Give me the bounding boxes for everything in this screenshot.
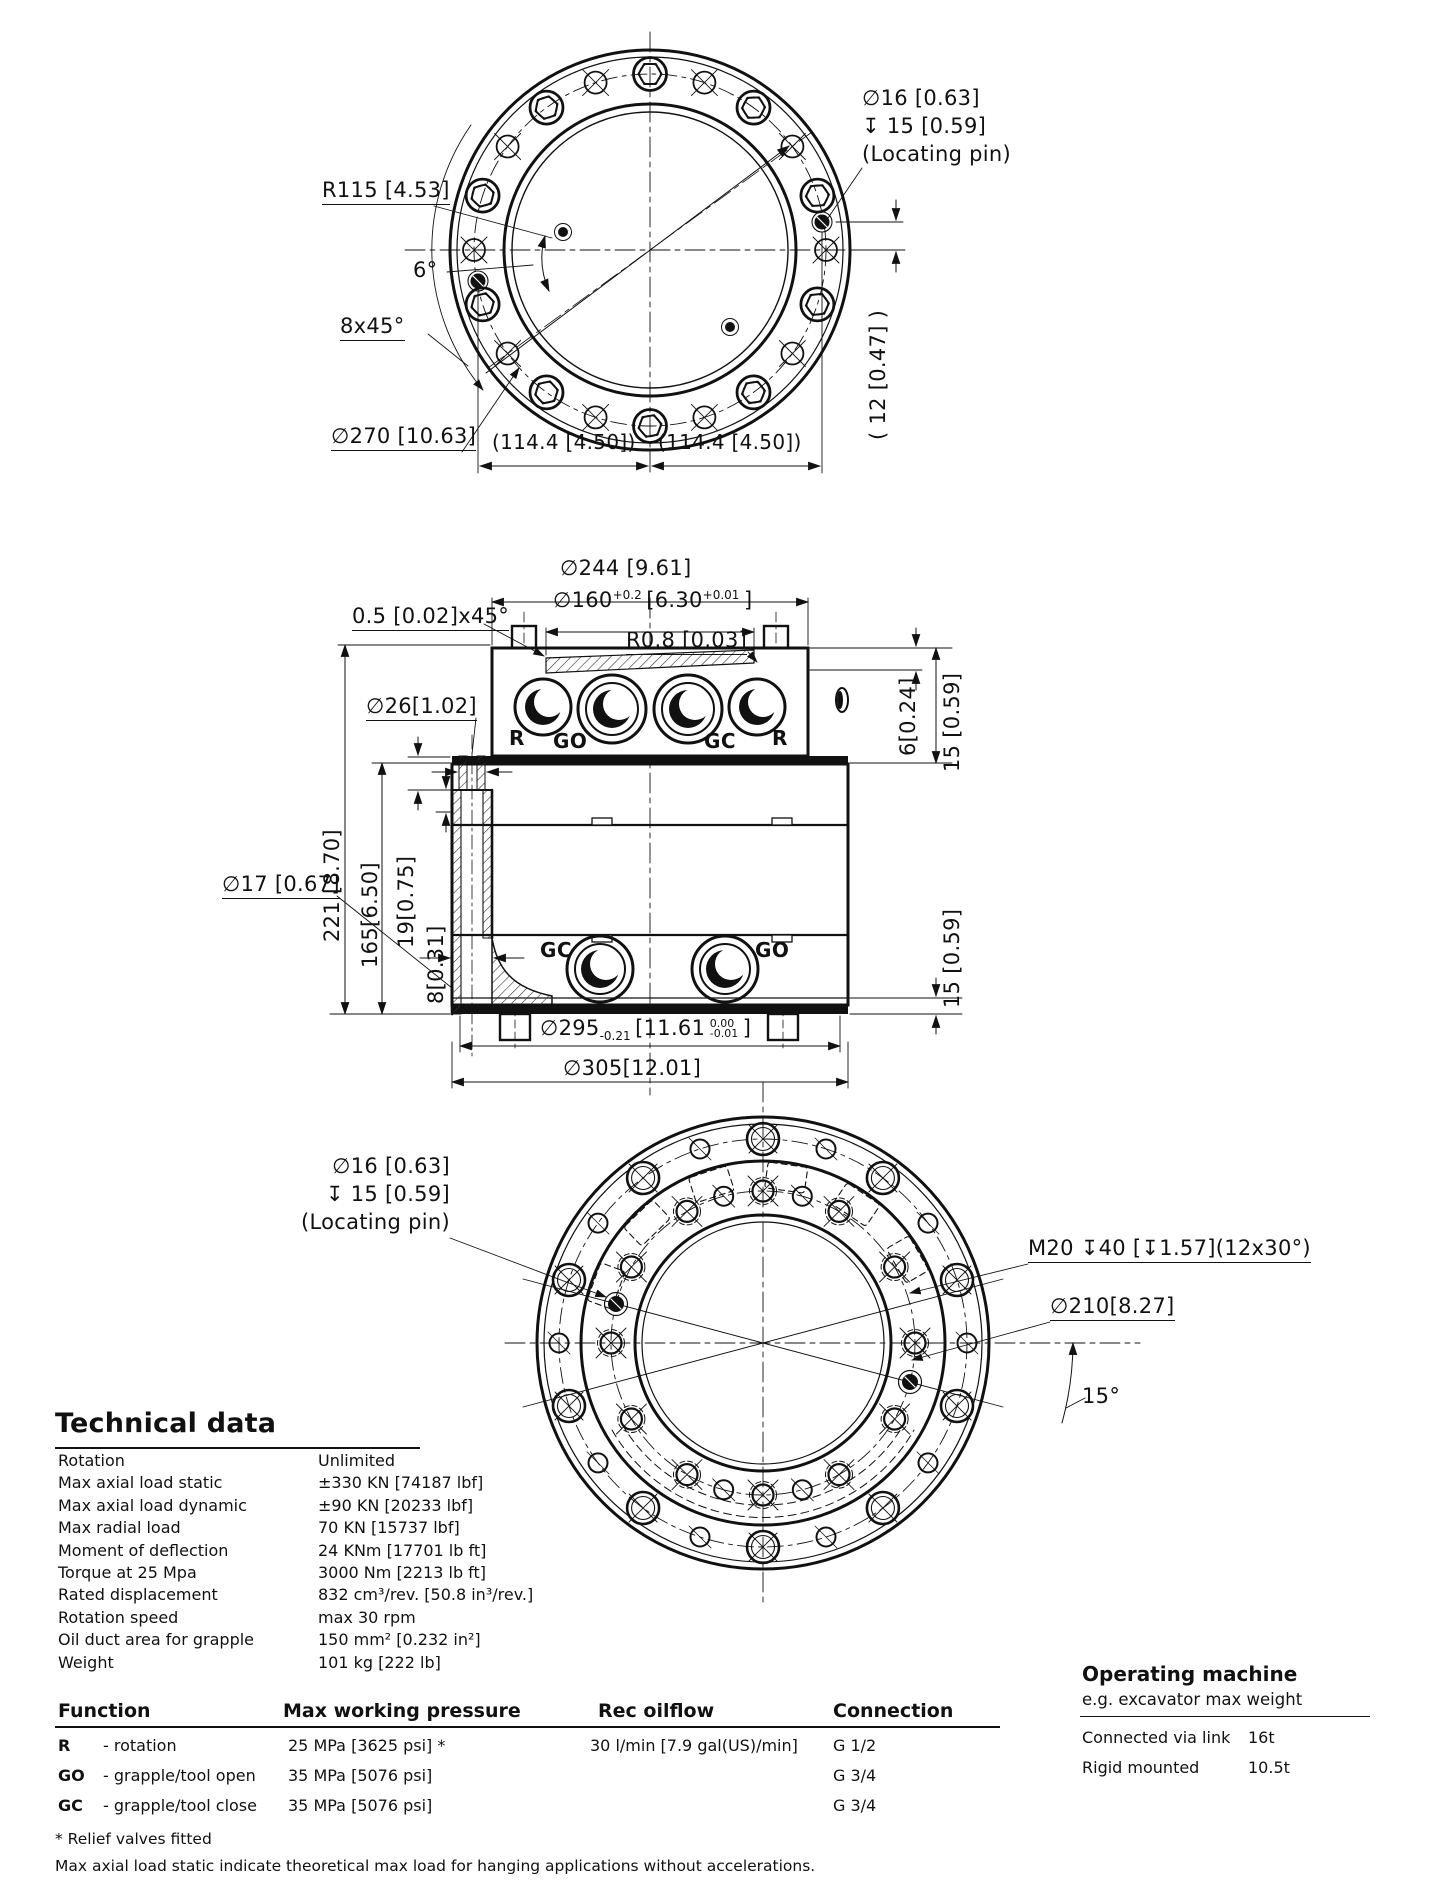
func-pressure: 35 MPa [5076 psi] [288, 1766, 432, 1785]
func-desc: - rotation [103, 1736, 177, 1755]
td-value: 70 KN [15737 lbf] [318, 1517, 533, 1539]
td-label: Oil duct area for grapple [58, 1629, 318, 1651]
port-label-r2: R [772, 726, 788, 750]
func-pressure: 25 MPa [3625 psi] * [288, 1736, 445, 1755]
dia-26-label: ∅26[1.02] [366, 694, 477, 721]
td-label: Moment of deflection [58, 1540, 318, 1562]
func-desc: - grapple/tool close [103, 1796, 257, 1815]
td-label: Rotation speed [58, 1607, 318, 1629]
func-code: GO [58, 1766, 85, 1785]
function-table-rule [55, 1726, 1000, 1728]
dia-210-label: ∅210[8.27] [1050, 1294, 1175, 1321]
dia-160-label: ∅160+0.2 [6.30+0.01 ] [553, 588, 752, 612]
radius-dim-label: R115 [4.53] [322, 178, 450, 205]
side-view-bottom-ports [567, 936, 758, 1002]
dia-305-label: ∅305[12.01] [563, 1056, 701, 1080]
thread-spec-label: M20 ↧40 [↧1.57](12x30°) [1028, 1236, 1311, 1263]
om-label: Rigid mounted [1082, 1758, 1199, 1777]
td-label: Torque at 25 Mpa [58, 1562, 318, 1584]
technical-data-table: RotationUnlimited Max axial load static±… [58, 1450, 533, 1674]
operating-machine-heading: Operating machine [1082, 1662, 1297, 1686]
dia-244-label: ∅244 [9.61] [560, 556, 692, 580]
func-header-function: Function [58, 1700, 151, 1722]
td-value: Unlimited [318, 1450, 533, 1472]
pin-note-label: (Locating pin) [301, 1208, 450, 1236]
bolt-circle-dia-label: ∅270 [10.63] [331, 424, 476, 451]
port-label-go-bottom: GO [755, 938, 789, 962]
port-label-r1: R [509, 726, 525, 750]
angle-15-label: 15° [1082, 1384, 1120, 1408]
om-value: 16t [1248, 1728, 1275, 1747]
angle-6-label: 6° [413, 258, 437, 282]
operating-machine-subheading: e.g. excavator max weight [1082, 1690, 1302, 1709]
bottom-view-drawing [450, 1082, 1140, 1605]
height-8-label: 8[0.31] [424, 925, 448, 1004]
pin-height-label: ( 12 [0.47] ) [866, 310, 890, 440]
dia-17-label: ∅17 [0.67] [222, 872, 340, 899]
pin-dia-label: ∅16 [0.63] [290, 1152, 450, 1180]
port-label-gc-bottom: GC [540, 938, 572, 962]
pin-dia-label: ∅16 [0.63] [862, 84, 1011, 112]
func-code: R [58, 1736, 70, 1755]
td-value: 832 cm³/rev. [50.8 in³/rev.] [318, 1584, 533, 1606]
pin-offset-right-label: (114.4 [4.50]) [658, 430, 802, 454]
om-label: Connected via link [1082, 1728, 1230, 1747]
top-view-locating-pin-left [468, 271, 488, 291]
func-oilflow: 30 l/min [7.9 gal(US)/min] [590, 1736, 798, 1755]
bottom-pin-note: ∅16 [0.63] ↧ 15 [0.59] (Locating pin) [290, 1152, 450, 1236]
om-value: 10.5t [1248, 1758, 1290, 1777]
dia-295-label: ∅295-0.21 [11.61 0.00-0.01 ] [540, 1016, 751, 1040]
td-label: Max axial load dynamic [58, 1495, 318, 1517]
footnote-relief-valves: * Relief valves fitted [55, 1830, 212, 1848]
func-header-connection: Connection [833, 1700, 953, 1722]
top-view-locating-pin-right [812, 212, 832, 232]
height-19-label: 19[0.75] [394, 856, 418, 948]
operating-machine-rule [1080, 1716, 1370, 1717]
td-value: 24 KNm [17701 lb ft] [318, 1540, 533, 1562]
td-value: 101 kg [222 lb] [318, 1652, 533, 1674]
bottom-view-locating-pin-right [899, 1371, 922, 1394]
step-15-lower-label: 15 [0.59] [940, 909, 964, 1008]
func-connection: G 3/4 [833, 1766, 876, 1785]
port-label-go: GO [553, 729, 587, 753]
technical-data-heading: Technical data [55, 1408, 420, 1449]
drawing-sheet: ∅16 [0.63] ↧ 15 [0.59] (Locating pin) R1… [0, 0, 1431, 1887]
td-label: Rated displacement [58, 1584, 318, 1606]
height-165-label: 165[6.50] [358, 862, 382, 968]
td-value: ±90 KN [20233 lbf] [318, 1495, 533, 1517]
func-connection: G 1/2 [833, 1736, 876, 1755]
td-value: max 30 rpm [318, 1607, 533, 1629]
port-label-gc: GC [704, 729, 736, 753]
pin-depth-label: ↧ 15 [0.59] [862, 112, 1011, 140]
chamfer-8x45-label: 8x45° [340, 314, 405, 341]
td-label: Max axial load static [58, 1472, 318, 1494]
pin-depth-label: ↧ 15 [0.59] [290, 1180, 450, 1208]
td-label: Weight [58, 1652, 318, 1674]
td-value: 3000 Nm [2213 lb ft] [318, 1562, 533, 1584]
step-6-label: 6[0.24] [896, 677, 920, 756]
func-code: GC [58, 1796, 83, 1815]
td-label: Max radial load [58, 1517, 318, 1539]
func-desc: - grapple/tool open [103, 1766, 256, 1785]
top-view-drawing [405, 32, 905, 475]
pin-offset-left-label: (114.4 [4.50]) [492, 430, 636, 454]
func-connection: G 3/4 [833, 1796, 876, 1815]
td-label: Rotation [58, 1450, 318, 1472]
footnote-max-load: Max axial load static indicate theoretic… [55, 1857, 815, 1875]
top-pin-note: ∅16 [0.63] ↧ 15 [0.59] (Locating pin) [862, 84, 1011, 168]
func-header-pressure: Max working pressure [283, 1700, 521, 1722]
func-pressure: 35 MPa [5076 psi] [288, 1796, 432, 1815]
td-value: 150 mm² [0.232 in²] [318, 1629, 533, 1651]
radius-08-label: R0.8 [0.03] [626, 628, 747, 655]
chamfer-05-label: 0.5 [0.02]x45° [352, 604, 509, 631]
step-15-upper-label: 15 [0.59] [940, 673, 964, 772]
pin-note-label: (Locating pin) [862, 140, 1011, 168]
func-header-oilflow: Rec oilflow [598, 1700, 714, 1722]
td-value: ±330 KN [74187 lbf] [318, 1472, 533, 1494]
